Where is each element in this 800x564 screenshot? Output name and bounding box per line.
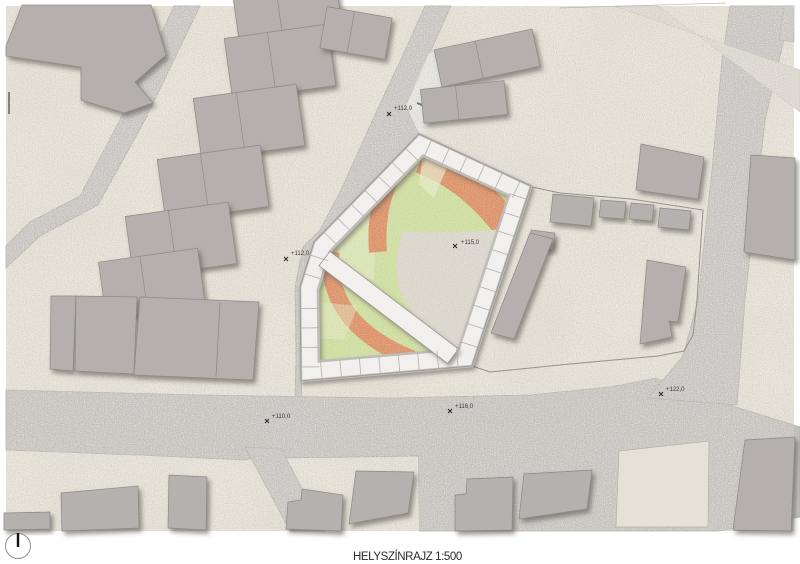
svg-text:+122,0: +122,0 bbox=[666, 387, 685, 393]
svg-text:HELYSZÍNRAJZ 1:500: HELYSZÍNRAJZ 1:500 bbox=[353, 550, 462, 563]
svg-text:+110,0: +110,0 bbox=[272, 414, 291, 420]
svg-text:+115,0: +115,0 bbox=[461, 240, 480, 246]
svg-text:+112,0: +112,0 bbox=[291, 251, 310, 257]
svg-text:+116,0: +116,0 bbox=[455, 404, 474, 410]
svg-text:+112,0: +112,0 bbox=[394, 106, 413, 112]
